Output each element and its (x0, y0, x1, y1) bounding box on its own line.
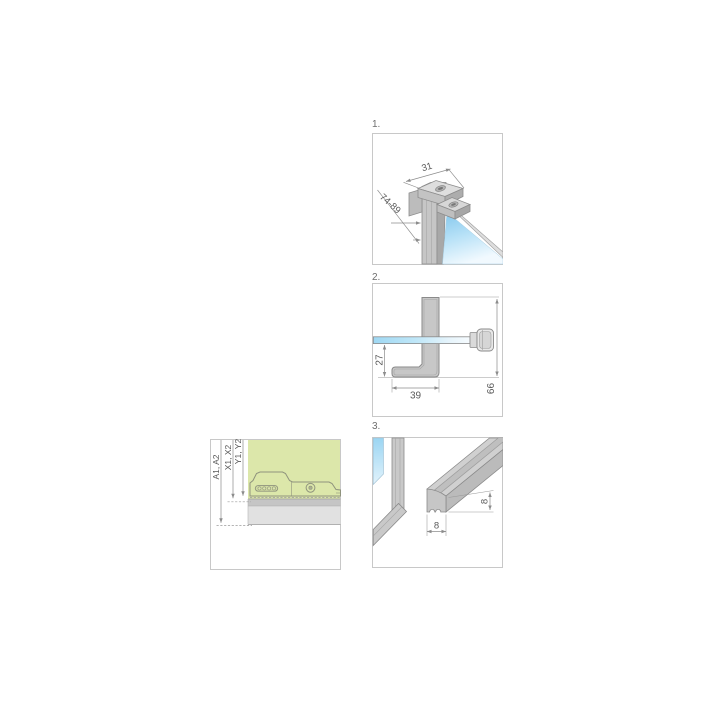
step-2-label: 2. (372, 272, 380, 283)
dim-label-31: 31 (420, 161, 433, 174)
installed-seal-strip (373, 504, 406, 546)
figure-step2-bracket: 27 39 66 (372, 283, 503, 417)
figure-step3-seal: 8 8 (372, 437, 503, 568)
dim-label-74-89: 74-89 (377, 192, 402, 216)
wall-bracket (409, 181, 470, 220)
seal-strip-iso (427, 438, 503, 512)
figure-adjustment-carriage: A1, A2 X1, X2 Y1, Y2 (208, 437, 343, 572)
dim-label-seal-width: 8 (434, 521, 439, 532)
installation-diagram-page: 1. 2. 3. (0, 0, 720, 720)
dim-label-y1-y2: Y1, Y2 (233, 439, 243, 465)
dim-label-27: 27 (375, 354, 386, 366)
dim-label-39: 39 (410, 391, 422, 402)
dim-label-x1-x2: X1, X2 (223, 444, 233, 470)
glass-door-edge (373, 438, 383, 485)
dim-label-a1-a2: A1, A2 (211, 454, 221, 479)
step-3-label: 3. (372, 421, 380, 432)
dim-label-66: 66 (486, 383, 497, 395)
step-1-label: 1. (372, 119, 380, 130)
support-bar-glass (373, 337, 470, 344)
bar-end-fitting (470, 329, 494, 351)
bottom-rail (248, 499, 341, 525)
dim-label-seal-height: 8 (480, 499, 491, 504)
figure-step1-wall-profile: 31 74-89 (372, 133, 503, 265)
